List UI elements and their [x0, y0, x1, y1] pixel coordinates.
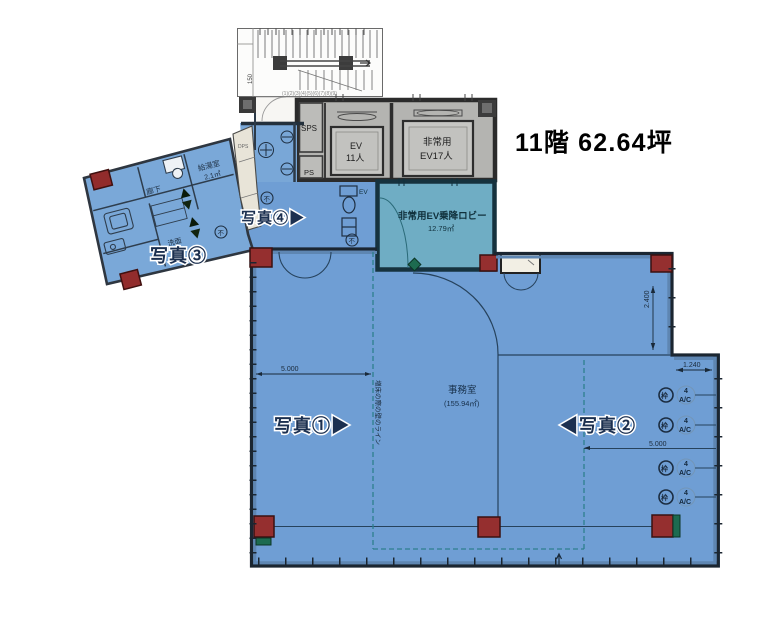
svg-text:写真①▶: 写真①▶: [274, 415, 350, 436]
svg-text:非常用EV乗降ロビー: 非常用EV乗降ロビー: [398, 210, 487, 222]
svg-text:◀写真②: ◀写真②: [560, 415, 636, 436]
svg-text:A/C: A/C: [679, 427, 691, 434]
svg-text:(1)(2)(3)(4)(5)(6)(7)(8)(9): (1)(2)(3)(4)(5)(6)(7)(8)(9): [282, 91, 337, 97]
svg-text:11人: 11人: [346, 153, 364, 163]
svg-text:SPS: SPS: [301, 124, 317, 133]
svg-text:EV: EV: [350, 141, 362, 151]
svg-text:PS: PS: [304, 168, 314, 177]
svg-text:12.79㎡: 12.79㎡: [428, 224, 455, 233]
svg-text:150: 150: [248, 73, 254, 84]
svg-text:事務室: 事務室: [448, 384, 477, 396]
svg-text:増床の際の壁のライン: 増床の際の壁のライン: [374, 380, 383, 445]
svg-text:枠: 枠: [661, 493, 668, 502]
svg-text:不: 不: [264, 195, 271, 203]
svg-text:不: 不: [218, 229, 225, 237]
svg-text:11階 62.64坪: 11階 62.64坪: [515, 129, 673, 157]
svg-text:写真④▶: 写真④▶: [241, 209, 305, 227]
svg-text:5.000: 5.000: [649, 441, 667, 448]
svg-text:枠: 枠: [661, 464, 668, 473]
svg-text:5.000: 5.000: [281, 366, 299, 373]
svg-text:枠: 枠: [661, 391, 668, 400]
svg-text:A/C: A/C: [679, 470, 691, 477]
svg-text:EV17人: EV17人: [420, 151, 453, 162]
svg-text:2.400: 2.400: [644, 290, 651, 308]
svg-text:写真③: 写真③: [150, 245, 207, 266]
svg-text:(155.94㎡): (155.94㎡): [444, 399, 480, 408]
svg-text:4: 4: [684, 388, 688, 395]
svg-text:A/C: A/C: [679, 397, 691, 404]
svg-text:EV: EV: [359, 189, 368, 196]
svg-text:4: 4: [684, 490, 688, 497]
svg-text:A/C: A/C: [679, 499, 691, 506]
svg-text:不: 不: [349, 237, 356, 245]
svg-text:DPS: DPS: [238, 144, 249, 150]
svg-text:1.240: 1.240: [683, 362, 701, 369]
svg-text:4: 4: [684, 461, 688, 468]
svg-text:非常用: 非常用: [423, 136, 452, 148]
svg-text:4: 4: [684, 418, 688, 425]
svg-text:枠: 枠: [661, 421, 668, 430]
